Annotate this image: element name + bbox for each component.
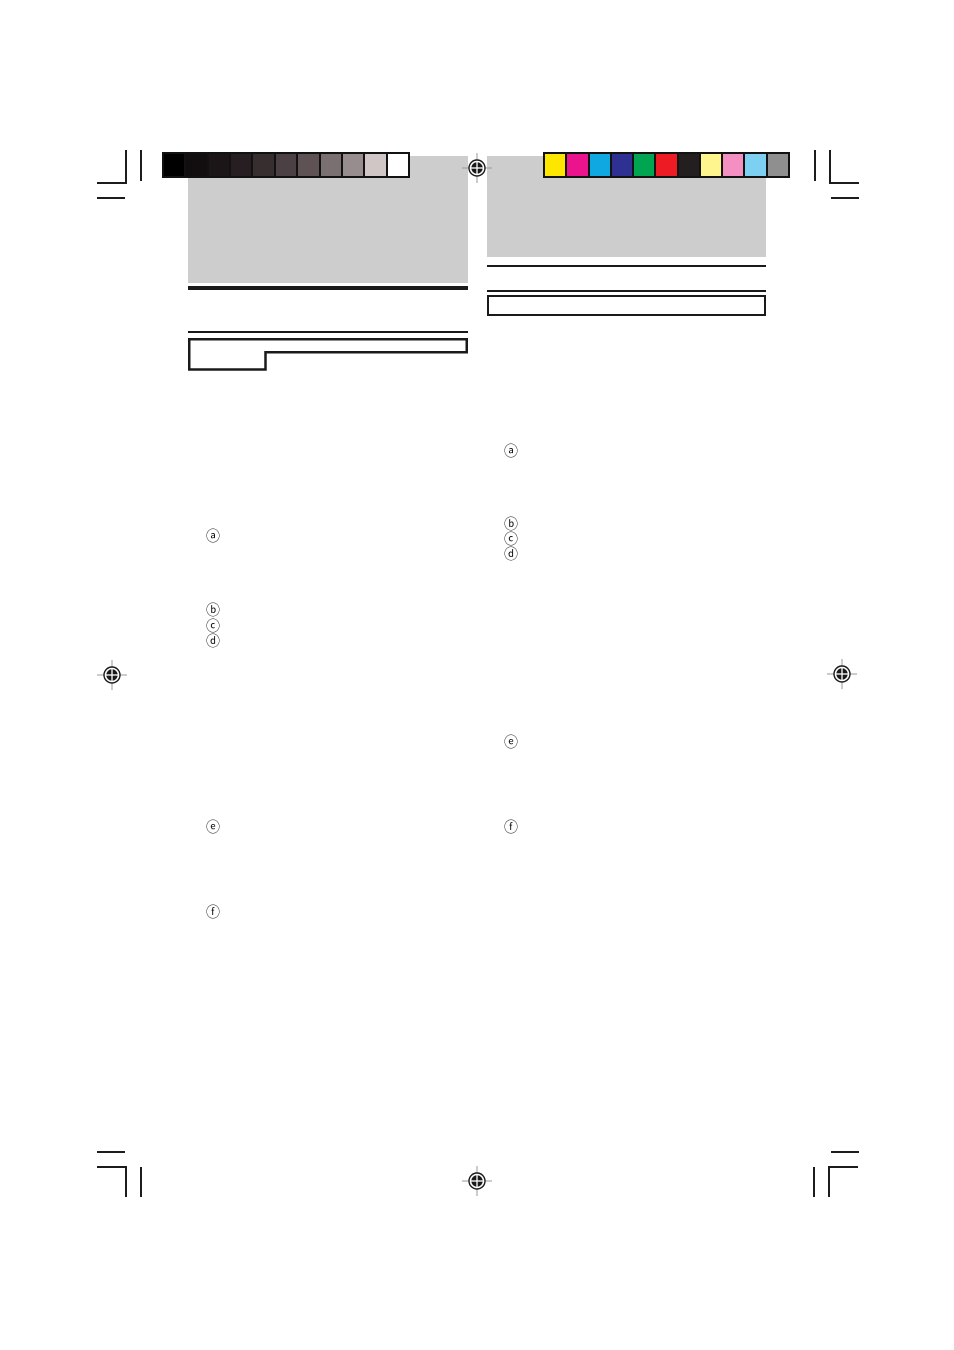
crop-mark-line	[125, 1166, 127, 1197]
callout-marker-e: ⓔ	[206, 821, 220, 835]
callout-marker-c: ⓒ	[504, 533, 518, 547]
calibration-swatch	[634, 154, 654, 176]
registration-mark-icon	[827, 659, 857, 689]
calibration-swatch	[298, 154, 318, 176]
calibration-swatch	[656, 154, 676, 176]
crop-mark-line	[125, 150, 127, 182]
color-calibration-bar	[543, 152, 790, 178]
crop-mark-line	[140, 1167, 142, 1197]
crop-mark-line	[97, 197, 125, 199]
calibration-swatch	[164, 154, 184, 176]
registration-mark-icon	[462, 1166, 492, 1196]
registration-mark-icon	[97, 660, 127, 690]
callout-marker-b: ⓑ	[206, 604, 220, 618]
callout-marker-f: ⓕ	[206, 906, 220, 920]
callout-marker-f: ⓕ	[504, 821, 518, 835]
calibration-swatch	[388, 154, 408, 176]
calibration-swatch	[321, 154, 341, 176]
crop-mark-line	[828, 1166, 858, 1168]
section-divider-thin	[487, 290, 766, 292]
calibration-swatch	[567, 154, 587, 176]
crop-mark-line	[813, 1167, 815, 1197]
crop-mark-line	[831, 1151, 859, 1153]
calibration-swatch	[590, 154, 610, 176]
crop-mark-line	[97, 1151, 125, 1153]
crop-mark-line	[97, 1166, 127, 1168]
callout-marker-a: ⓐ	[504, 445, 518, 459]
callout-marker-e: ⓔ	[504, 736, 518, 750]
crop-mark-line	[140, 150, 142, 181]
calibration-swatch	[745, 154, 765, 176]
calibration-swatch	[276, 154, 296, 176]
crop-mark-line	[828, 1166, 830, 1197]
calibration-swatch	[723, 154, 743, 176]
calibration-swatch	[545, 154, 565, 176]
section-divider-thick	[188, 286, 468, 290]
callout-marker-a: ⓐ	[206, 530, 220, 544]
calibration-swatch	[343, 154, 363, 176]
crop-mark-line	[829, 182, 859, 184]
section-divider-thin	[487, 265, 766, 267]
calibration-swatch	[701, 154, 721, 176]
section-tab-outline	[188, 338, 468, 371]
crop-mark-line	[814, 150, 816, 181]
grayscale-calibration-bar	[162, 152, 410, 178]
callout-marker-d: ⓓ	[504, 548, 518, 562]
calibration-swatch	[186, 154, 206, 176]
crop-mark-line	[97, 182, 127, 184]
calibration-swatch	[253, 154, 273, 176]
section-divider-thin	[188, 331, 468, 333]
printed-page: ⓐ ⓑ ⓒ ⓓ ⓔ ⓕ ⓐ ⓑ ⓒ ⓓ ⓔ ⓕ	[0, 0, 954, 1350]
callout-marker-b: ⓑ	[504, 518, 518, 532]
crop-mark-line	[831, 197, 859, 199]
registration-mark-icon	[462, 153, 492, 183]
callout-marker-d: ⓓ	[206, 635, 220, 649]
calibration-swatch	[209, 154, 229, 176]
outlined-heading-box	[487, 295, 766, 316]
calibration-swatch	[231, 154, 251, 176]
calibration-swatch	[768, 154, 788, 176]
calibration-swatch	[365, 154, 385, 176]
calibration-swatch	[679, 154, 699, 176]
calibration-swatch	[612, 154, 632, 176]
crop-mark-line	[829, 150, 831, 182]
callout-marker-c: ⓒ	[206, 620, 220, 634]
